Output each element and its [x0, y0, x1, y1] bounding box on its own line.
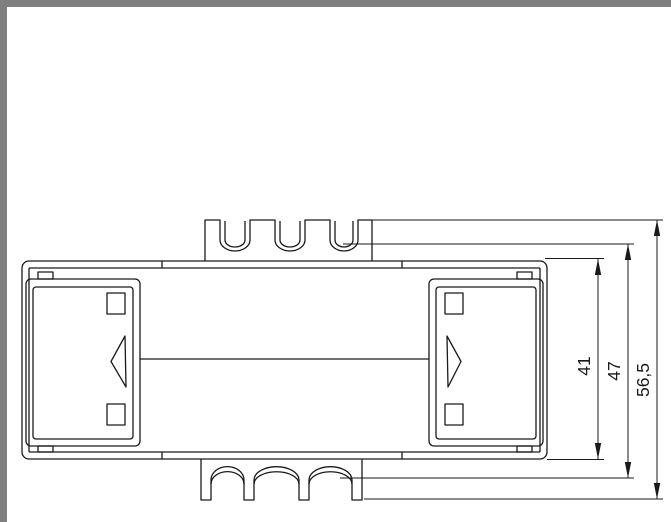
right-latch-outer — [429, 279, 543, 446]
left-latch-top-tab — [38, 272, 53, 279]
left-latch-bottom-tab — [38, 446, 53, 452]
arrowhead-down-icon — [654, 483, 660, 499]
left-latch-inner — [33, 287, 133, 439]
arrowhead-up-icon — [625, 244, 631, 260]
bottom-fins-outline — [201, 459, 362, 500]
right-latch-inner — [436, 287, 536, 439]
device-top-view — [22, 220, 547, 500]
right-latch-top-slot — [445, 293, 463, 314]
top-fin-slot-inner-3 — [335, 221, 353, 247]
drawing-page: 41 47 56,5 — [0, 0, 671, 522]
left-latch-top-slot — [107, 293, 125, 314]
body-outer-outline — [22, 261, 547, 459]
top-mounting-fins — [205, 220, 372, 261]
left-latch-bottom-slot — [107, 404, 125, 425]
right-latch-top-tab — [517, 272, 532, 279]
dimension-label-56_5: 56,5 — [633, 363, 653, 397]
arrowhead-up-icon — [595, 259, 601, 275]
bottom-mounting-fins — [201, 459, 362, 500]
dimension-line-47: 47 — [604, 244, 631, 478]
dimension-line-56_5: 56,5 — [633, 220, 660, 499]
left-release-latch — [26, 272, 140, 452]
arrowhead-up-icon — [654, 220, 660, 236]
frame-left-border — [0, 0, 7, 522]
bottom-fin-arch-inner-1 — [211, 472, 244, 484]
left-arrow-icon — [111, 336, 126, 387]
top-fins-outline — [205, 220, 372, 261]
frame-top-border — [0, 0, 671, 7]
top-fin-slot-inner-1 — [225, 221, 245, 247]
left-latch-outer — [26, 279, 140, 446]
dimension-label-41: 41 — [574, 356, 594, 375]
right-latch-bottom-slot — [445, 404, 463, 425]
arrowhead-down-icon — [595, 443, 601, 459]
top-fin-slot-inner-2 — [280, 221, 300, 247]
right-latch-bottom-tab — [517, 446, 532, 452]
bottom-fin-arch-inner-2 — [254, 472, 299, 484]
device-body — [22, 261, 547, 459]
dimension-line-41: 41 — [574, 259, 601, 459]
dimension-label-47: 47 — [604, 361, 624, 380]
arrowhead-down-icon — [625, 462, 631, 478]
right-release-latch — [429, 272, 543, 452]
technical-drawing-canvas: 41 47 56,5 — [0, 0, 671, 522]
right-arrow-icon — [447, 336, 461, 387]
